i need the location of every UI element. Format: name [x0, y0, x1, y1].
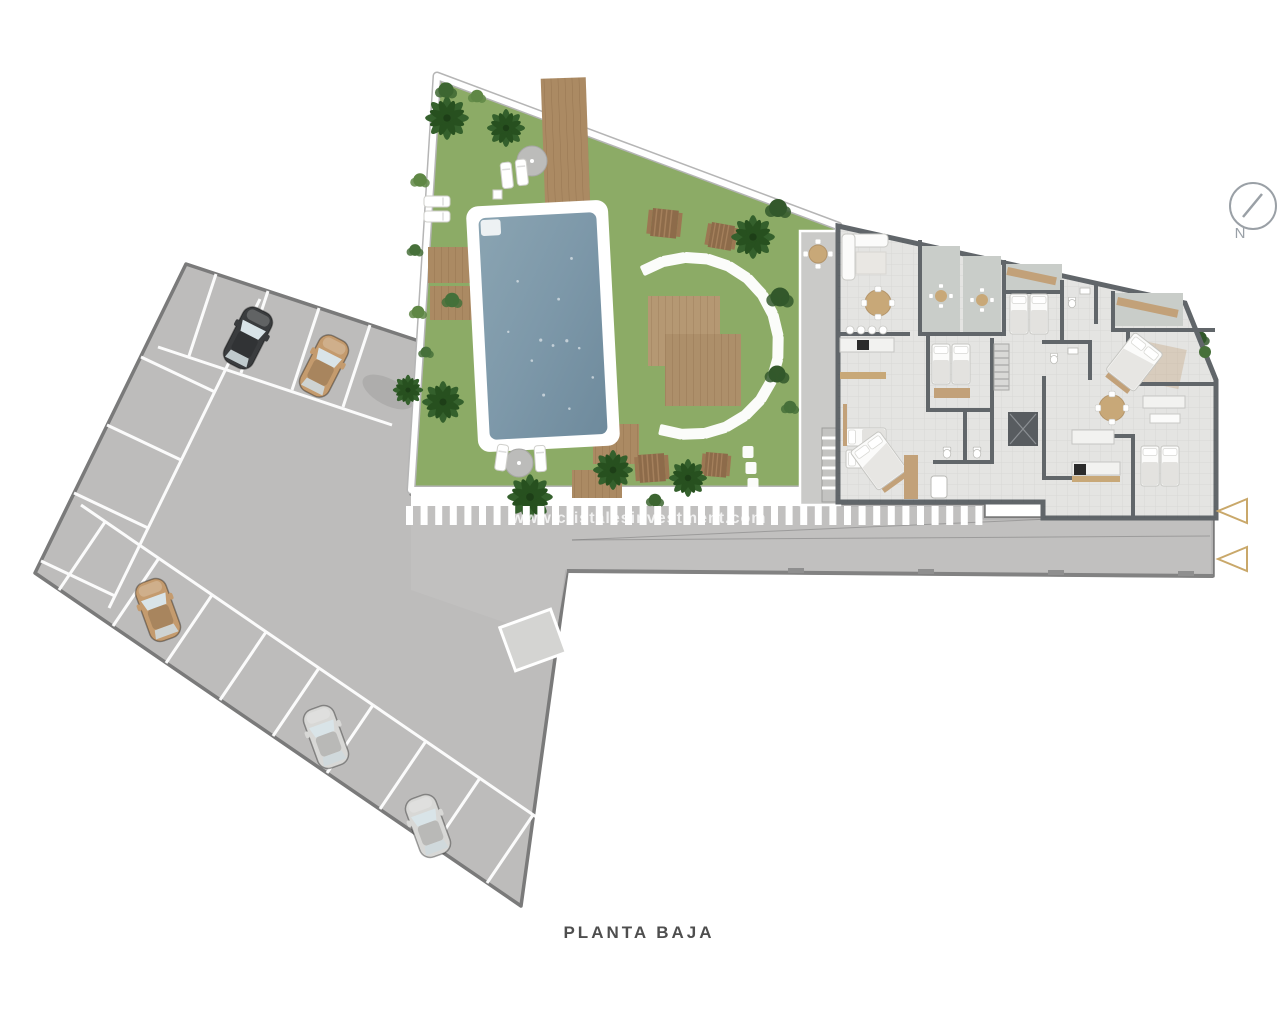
palm-tree-icon: [393, 375, 423, 405]
dining-table: [865, 290, 891, 316]
floor-plan-drawing: N www.cristalesinvestment.com PLANTA BAJ…: [0, 0, 1280, 1024]
compass-north-label: N: [1235, 225, 1246, 242]
palm-tree-icon: [593, 450, 633, 490]
compass-needle: [1243, 194, 1262, 217]
north-compass: N: [1230, 183, 1276, 242]
site-plan-canvas: N www.cristalesinvestment.com PLANTA BAJ…: [0, 0, 1280, 1024]
rug: [856, 252, 886, 274]
building-forecourt: [800, 231, 841, 505]
apartment-building: [838, 226, 1216, 518]
pool-steps: [480, 219, 501, 236]
floor-plan-title: PLANTA BAJA: [563, 923, 714, 942]
palm-tree-icon: [425, 96, 469, 140]
dining-table: [1099, 395, 1125, 421]
wardrobe: [904, 455, 918, 499]
palm-tree-icon: [487, 109, 525, 147]
entrance-arrows: [1218, 499, 1247, 571]
swimming-pool: [466, 199, 621, 452]
indoor-plant: [1199, 346, 1211, 358]
watermark-text: www.cristalesinvestment.com: [511, 510, 767, 527]
palm-tree-icon: [669, 459, 707, 497]
palm-tree-icon: [731, 215, 775, 259]
bush-icon: [407, 244, 424, 256]
walkway: [411, 490, 838, 506]
palm-tree-icon: [422, 381, 464, 423]
